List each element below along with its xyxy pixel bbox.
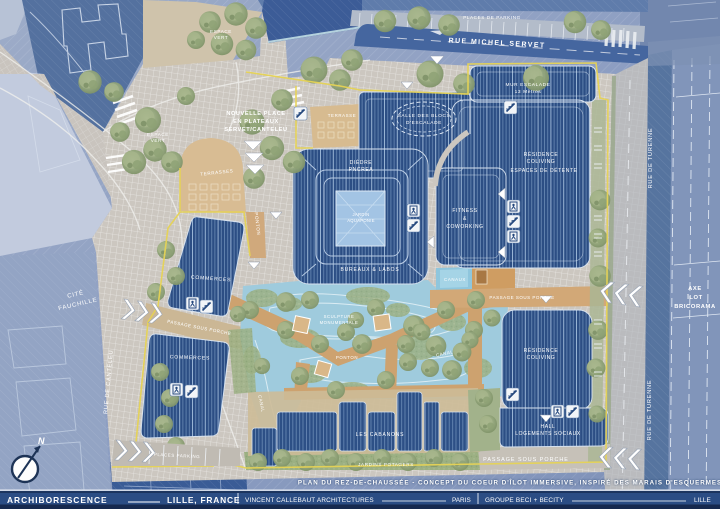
svg-text:VINCENT CALLEBAUT ARCHITECTURE: VINCENT CALLEBAUT ARCHITECTURES bbox=[245, 497, 374, 504]
svg-text:PLACES DE PARKING: PLACES DE PARKING bbox=[463, 15, 521, 20]
svg-text:LES CABANONS: LES CABANONS bbox=[356, 432, 405, 438]
svg-text:NOUVELLE PLACEEN PLATEAUXSERVE: NOUVELLE PLACEEN PLATEAUXSERVET/CANTELEU bbox=[224, 111, 287, 133]
svg-text:PASSAGE SOUS PORCHE: PASSAGE SOUS PORCHE bbox=[489, 295, 554, 300]
svg-text:RUE DE TURENNE: RUE DE TURENNE bbox=[647, 380, 653, 441]
svg-text:TERRASSE: TERRASSE bbox=[328, 113, 356, 118]
svg-text:PONTON: PONTON bbox=[336, 355, 358, 360]
svg-text:PASSAGE SOUS PORCHE: PASSAGE SOUS PORCHE bbox=[483, 457, 569, 463]
svg-text:RUE DE TURENNE: RUE DE TURENNE bbox=[648, 128, 654, 189]
svg-text:CANAUX: CANAUX bbox=[444, 277, 466, 282]
svg-text:PLAN DU REZ-DE-CHAUSSÉE - CONC: PLAN DU REZ-DE-CHAUSSÉE - CONCEPT DU COE… bbox=[298, 479, 720, 487]
svg-text:JARDINS POTAGERS: JARDINS POTAGERS bbox=[358, 462, 414, 467]
svg-text:ARCHIBORESCENCE: ARCHIBORESCENCE bbox=[7, 495, 108, 505]
svg-text:ESPACES DE DÉTENTE: ESPACES DE DÉTENTE bbox=[510, 167, 577, 174]
svg-text:GROUPE BECI + BECITY: GROUPE BECI + BECITY bbox=[485, 497, 564, 504]
svg-text:N: N bbox=[38, 436, 45, 446]
svg-text:PARIS: PARIS bbox=[452, 497, 471, 504]
svg-text:LILLE, FRANCE: LILLE, FRANCE bbox=[167, 495, 240, 505]
svg-text:BUREAUX & LABOS: BUREAUX & LABOS bbox=[341, 267, 400, 273]
svg-text:SCULPTUREMONUMENTALE: SCULPTUREMONUMENTALE bbox=[320, 314, 359, 325]
svg-text:LILLE: LILLE bbox=[694, 497, 711, 504]
